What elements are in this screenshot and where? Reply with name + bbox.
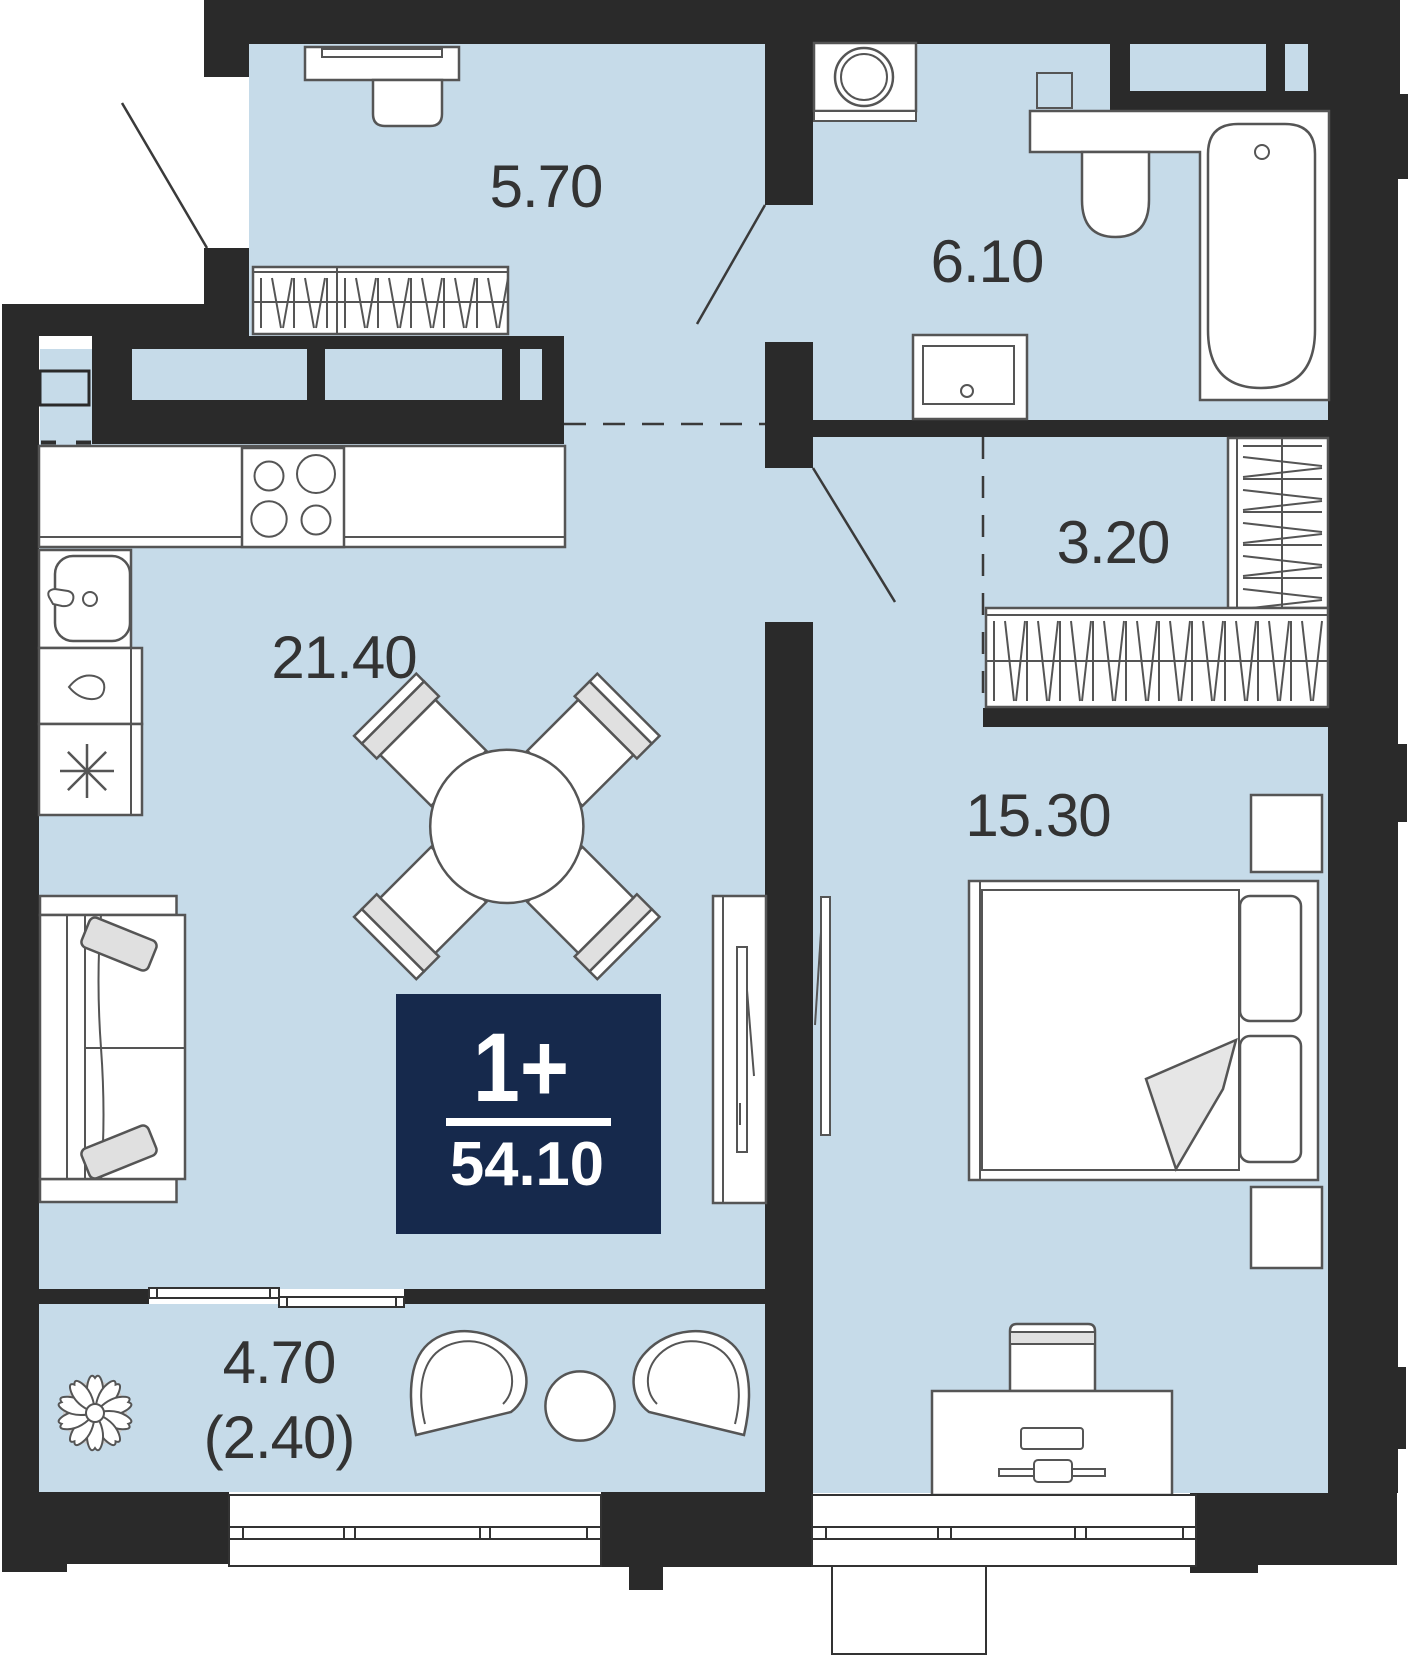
svg-text:6.10: 6.10 (931, 228, 1044, 295)
svg-text:15.30: 15.30 (965, 782, 1110, 849)
svg-text:(2.40): (2.40) (204, 1404, 355, 1471)
svg-text:4.70: 4.70 (223, 1329, 336, 1396)
svg-text:54.10: 54.10 (450, 1130, 604, 1199)
svg-text:3.20: 3.20 (1057, 509, 1170, 576)
svg-text:21.40: 21.40 (271, 624, 416, 691)
svg-text:1+: 1+ (473, 1013, 569, 1122)
svg-text:5.70: 5.70 (490, 153, 603, 220)
